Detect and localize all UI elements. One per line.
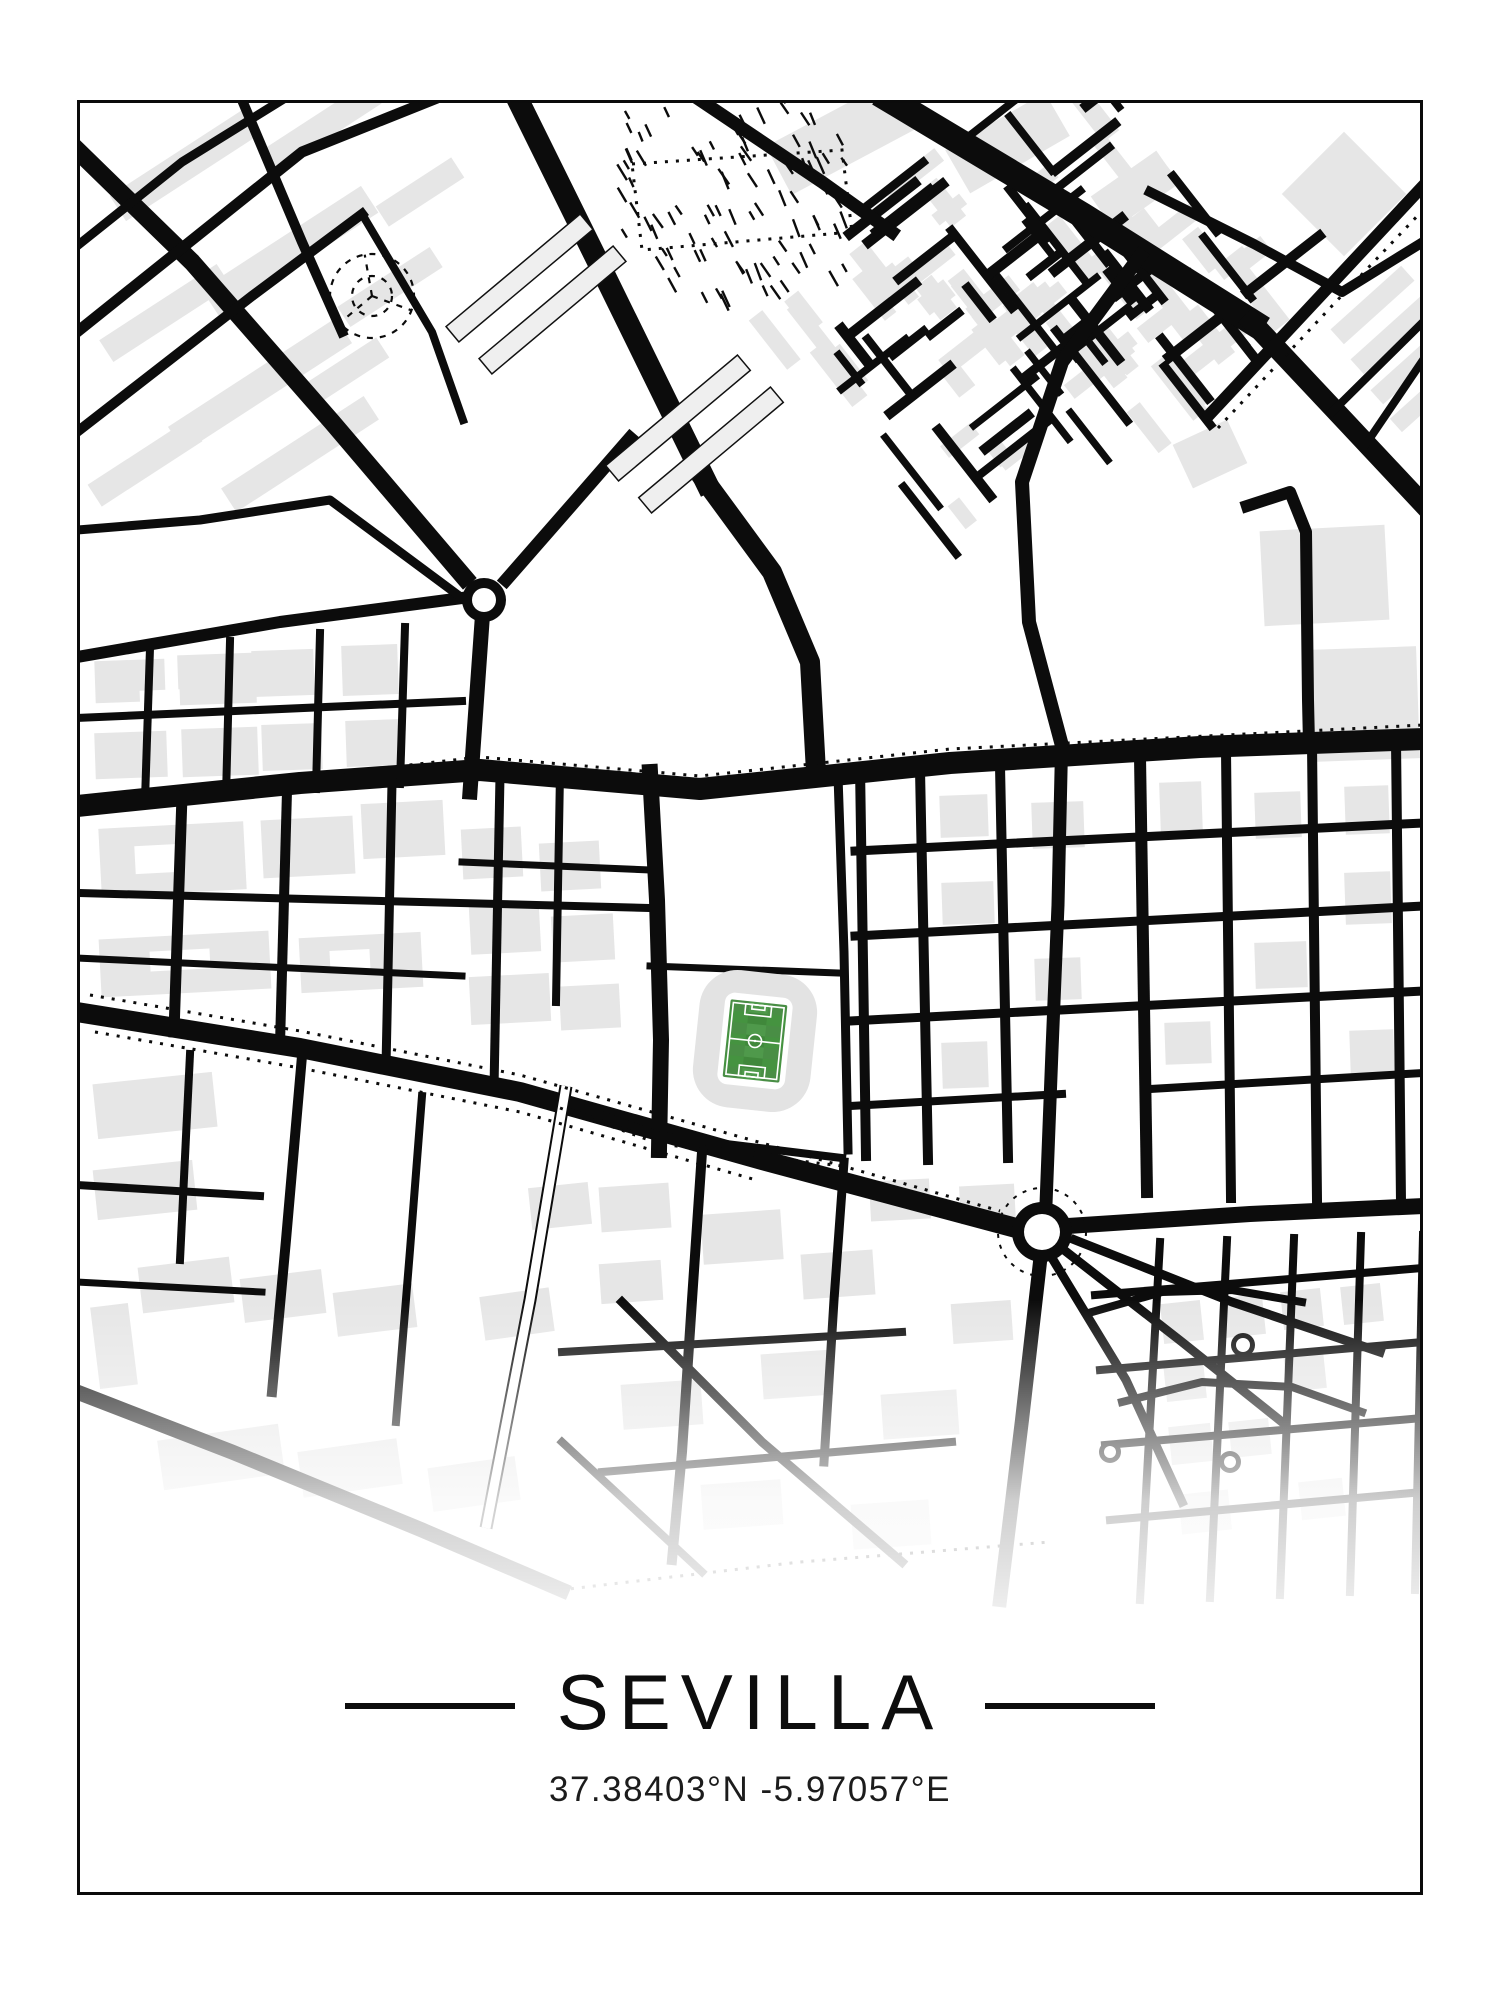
title-rule-left bbox=[345, 1703, 515, 1709]
city-title: SEVILLA bbox=[557, 1662, 944, 1744]
title-rule-right bbox=[985, 1703, 1155, 1709]
city-map-poster: SEVILLA 37.38403°N -5.97057°E bbox=[0, 0, 1500, 1998]
map-layers bbox=[77, 0, 1465, 1895]
old-quarter-maze bbox=[745, 0, 1370, 604]
coordinates-label: 37.38403°N -5.97057°E bbox=[0, 1770, 1500, 1810]
stadium-pitch-marker bbox=[689, 966, 821, 1116]
station-platforms bbox=[446, 214, 783, 513]
title-row: SEVILLA bbox=[0, 1662, 1500, 1744]
